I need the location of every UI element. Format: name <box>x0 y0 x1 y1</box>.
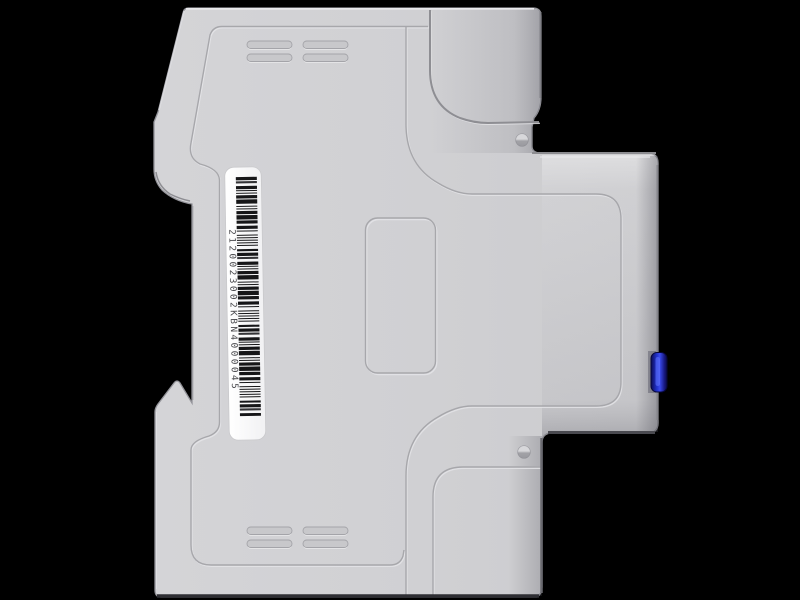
barcode-bar <box>238 301 259 305</box>
barcode-bar <box>240 400 261 402</box>
blue-release-button <box>648 351 667 393</box>
barcode-bar <box>236 195 257 199</box>
barcode-bar <box>238 325 259 327</box>
barcode-label: 2120023002KBN4000045 <box>225 167 266 441</box>
bottom-block-right-shade <box>508 436 542 596</box>
barcode-bar <box>239 366 260 371</box>
screw-detail-bottom <box>518 446 531 459</box>
barcode-bar <box>238 291 259 296</box>
barcode-bar <box>238 275 259 280</box>
barcode-bar <box>237 220 258 224</box>
vent-slot <box>247 41 292 49</box>
barcode-bar <box>237 226 258 230</box>
vent-slot <box>303 54 348 62</box>
barcode-bar <box>237 271 258 275</box>
barcode-bar <box>239 362 260 366</box>
barcode-bar <box>237 249 258 251</box>
barcode-bar <box>240 408 261 410</box>
vent-slot <box>247 54 292 62</box>
device-render: 2120023002KBN4000045 <box>0 0 800 600</box>
product-photo-stage: 2120023002KBN4000045 <box>0 0 800 600</box>
barcode-bar <box>236 215 257 220</box>
vent-slot <box>247 540 292 548</box>
vent-slot <box>247 527 292 535</box>
barcode-bar <box>237 253 258 257</box>
barcode-bar <box>237 261 258 265</box>
vent-slot <box>303 527 348 535</box>
barcode-bar <box>239 372 260 376</box>
barcode-bar <box>236 177 257 181</box>
barcode-bar <box>239 377 260 381</box>
barcode-bar <box>236 211 257 215</box>
barcode-bar <box>238 286 259 290</box>
barcode-bar <box>237 257 258 259</box>
barcode-bar <box>240 413 261 416</box>
barcode-bar <box>238 296 259 300</box>
barcode-bar <box>236 181 257 183</box>
barcode-bar <box>239 351 260 356</box>
barcode-bar <box>238 328 259 332</box>
barcode-bar <box>236 199 257 204</box>
barcode-bar <box>239 337 260 341</box>
vent-slot <box>303 41 348 49</box>
barcode-bar <box>239 332 260 334</box>
vent-slot <box>303 540 348 548</box>
front-top-block-shading <box>430 9 541 153</box>
barcode-bar <box>236 186 257 190</box>
barcode-bar <box>239 346 260 350</box>
barcode-bar <box>240 404 261 408</box>
screw-detail-top <box>516 134 529 147</box>
